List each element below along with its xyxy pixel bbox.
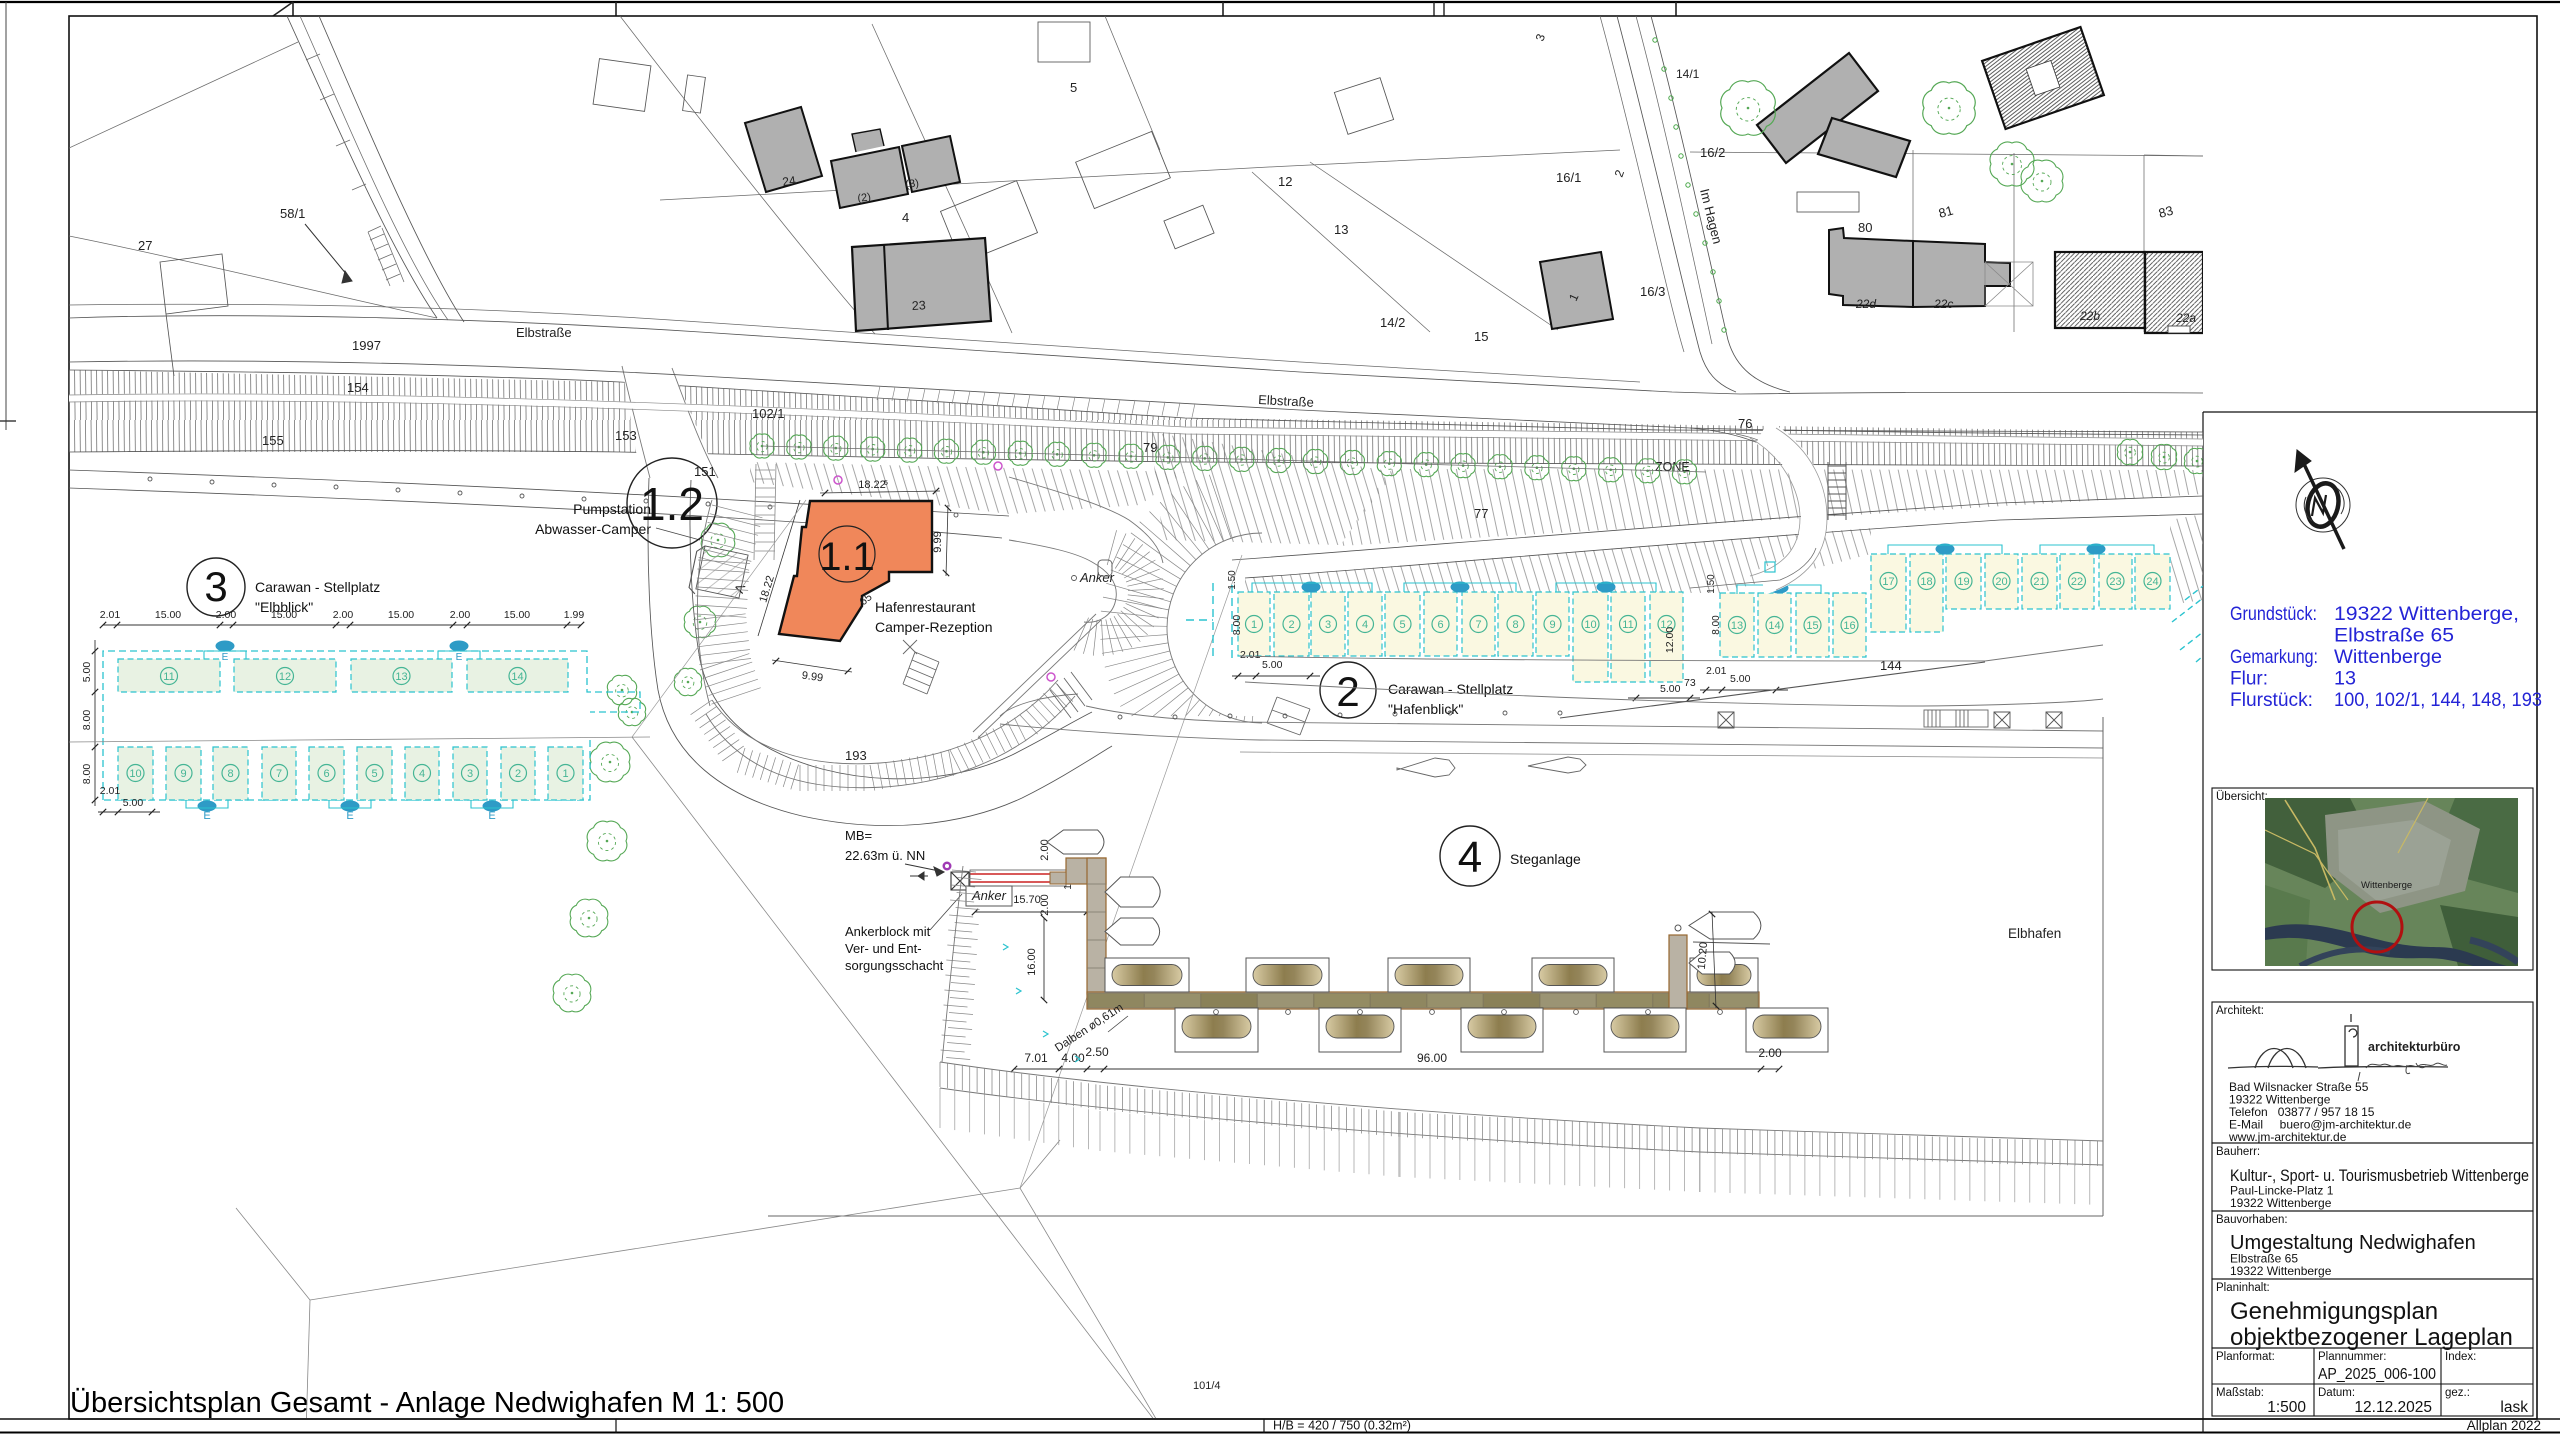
svg-text:14: 14 [1768, 620, 1780, 632]
svg-text:Elbstraße 65: Elbstraße 65 [2334, 626, 2454, 647]
svg-text:19: 19 [1957, 576, 1969, 588]
svg-text:2.01: 2.01 [1706, 665, 1727, 677]
svg-text:3: 3 [467, 768, 473, 780]
svg-text:22c: 22c [1933, 297, 1953, 311]
svg-text:Gemarkung:: Gemarkung: [2230, 647, 2318, 668]
svg-text:5: 5 [371, 768, 377, 780]
svg-text:16.00: 16.00 [1026, 948, 1038, 976]
svg-text:193: 193 [845, 748, 867, 763]
svg-text:102/1: 102/1 [752, 406, 785, 421]
svg-text:22d: 22d [1855, 297, 1876, 311]
svg-text:22: 22 [2071, 576, 2083, 588]
svg-text:4: 4 [419, 768, 425, 780]
svg-text:2.50: 2.50 [1085, 1045, 1109, 1059]
svg-text:5.00: 5.00 [1262, 659, 1283, 671]
svg-text:Flur:: Flur: [2230, 669, 2268, 690]
svg-text:5: 5 [884, 480, 888, 487]
svg-text:Camper-Rezeption: Camper-Rezeption [875, 619, 993, 635]
svg-text:8.00: 8.00 [81, 710, 93, 731]
svg-text:MB=: MB= [845, 828, 872, 843]
svg-text:(3): (3) [905, 177, 920, 191]
svg-text:Hafenrestaurant: Hafenrestaurant [875, 599, 976, 615]
svg-text:12: 12 [1278, 174, 1292, 189]
svg-text:15.70: 15.70 [1013, 894, 1041, 906]
svg-text:Anker: Anker [971, 888, 1007, 903]
svg-text:E: E [456, 652, 463, 663]
svg-text:1.99: 1.99 [564, 609, 585, 621]
svg-text:Anker: Anker [1079, 570, 1115, 585]
svg-text:Grundstück:: Grundstück: [2230, 604, 2317, 625]
svg-text:sorgungsschacht: sorgungsschacht [845, 958, 944, 973]
svg-text:5: 5 [1070, 80, 1077, 95]
svg-text:www.jm-architektur.de: www.jm-architektur.de [2228, 1130, 2347, 1144]
svg-text:E: E [488, 810, 495, 822]
svg-text:gez.:: gez.: [2445, 1387, 2470, 1399]
svg-text:Index:: Index: [2445, 1351, 2476, 1363]
svg-text:11: 11 [163, 671, 174, 683]
svg-text:154: 154 [347, 380, 369, 395]
svg-text:22a: 22a [2175, 311, 2196, 325]
svg-text:5: 5 [1399, 619, 1405, 631]
svg-text:lask: lask [2500, 1399, 2528, 1416]
svg-text:77: 77 [1474, 506, 1488, 521]
svg-text:E: E [222, 652, 229, 663]
svg-text:8: 8 [1512, 619, 1518, 631]
svg-text:14/1: 14/1 [1676, 67, 1700, 81]
svg-text:12: 12 [279, 671, 291, 683]
svg-text:144: 144 [1880, 658, 1902, 673]
svg-text:objektbezogener Lageplan: objektbezogener Lageplan [2230, 1324, 2513, 1351]
svg-text:12.00: 12.00 [1664, 627, 1676, 653]
svg-text:4.00: 4.00 [1061, 1051, 1085, 1065]
svg-text:27: 27 [138, 238, 152, 253]
svg-text:3: 3 [1325, 619, 1331, 631]
svg-text:8.00: 8.00 [81, 764, 93, 785]
svg-text:4: 4 [1362, 619, 1368, 631]
svg-text:2.01: 2.01 [100, 609, 121, 621]
svg-text:153: 153 [615, 428, 637, 443]
svg-text:Architekt:: Architekt: [2216, 1005, 2264, 1017]
svg-text:Elbstraße: Elbstraße [1258, 392, 1314, 410]
svg-text:4: 4 [902, 210, 909, 225]
svg-text:E: E [203, 810, 210, 822]
svg-text:19322 Wittenberge: 19322 Wittenberge [2230, 1264, 2332, 1278]
svg-text:5.00: 5.00 [1730, 673, 1751, 685]
svg-text:Datum:: Datum: [2318, 1387, 2355, 1399]
svg-text:15: 15 [1474, 329, 1488, 344]
svg-text:2.00: 2.00 [450, 609, 471, 621]
svg-text:17: 17 [1882, 576, 1894, 588]
svg-text:13: 13 [1731, 620, 1743, 632]
svg-text:24: 24 [2146, 576, 2158, 588]
svg-text:5.00: 5.00 [123, 797, 144, 809]
svg-text:9: 9 [180, 768, 186, 780]
svg-text:Wittenberge: Wittenberge [2361, 880, 2412, 891]
svg-text:58/1: 58/1 [280, 206, 305, 221]
svg-text:16/3: 16/3 [1640, 284, 1665, 299]
svg-text:13: 13 [1334, 222, 1348, 237]
svg-text:AP_2025_006-100: AP_2025_006-100 [2318, 1366, 2436, 1383]
svg-text:16/2: 16/2 [1700, 145, 1725, 160]
svg-text:Bauherr:: Bauherr: [2216, 1146, 2260, 1158]
svg-text:(2): (2) [857, 191, 872, 205]
svg-text:11: 11 [1622, 619, 1633, 631]
svg-text:Maßstab:: Maßstab: [2216, 1387, 2264, 1399]
svg-text:1: 1 [1251, 619, 1257, 631]
svg-text:Genehmigungsplan: Genehmigungsplan [2230, 1298, 2438, 1325]
svg-text:Abwasser-Camper: Abwasser-Camper [535, 521, 651, 537]
svg-text:Flurstück:: Flurstück: [2230, 690, 2313, 711]
svg-text:1: 1 [562, 768, 568, 780]
svg-text:"Elbblick": "Elbblick" [255, 599, 313, 615]
svg-text:13: 13 [395, 671, 407, 683]
svg-text:22b: 22b [2079, 309, 2100, 323]
svg-text:12.12.2025: 12.12.2025 [2354, 1399, 2432, 1416]
svg-text:18.22: 18.22 [858, 479, 886, 491]
svg-text:10.20: 10.20 [1696, 942, 1710, 970]
svg-text:1997: 1997 [352, 338, 381, 353]
svg-text:21: 21 [2033, 576, 2045, 588]
svg-text:76: 76 [1738, 416, 1752, 431]
svg-text:16: 16 [1843, 620, 1855, 632]
svg-text:155: 155 [262, 433, 284, 448]
svg-text:architekturbüro: architekturbüro [2368, 1040, 2461, 1054]
svg-text:9: 9 [1549, 619, 1555, 631]
svg-text:2.00: 2.00 [1039, 894, 1051, 915]
svg-text:8: 8 [227, 768, 233, 780]
svg-text:15: 15 [1806, 620, 1818, 632]
svg-text:2: 2 [1288, 619, 1294, 631]
svg-text:E: E [346, 810, 353, 822]
svg-text:7: 7 [1475, 619, 1481, 631]
svg-text:14/2: 14/2 [1380, 315, 1405, 330]
svg-text:6: 6 [323, 768, 329, 780]
svg-text:10: 10 [1584, 619, 1596, 631]
svg-text:Wittenberge: Wittenberge [2334, 647, 2442, 668]
svg-text:Steganlage: Steganlage [1510, 851, 1581, 867]
svg-text:24: 24 [781, 173, 796, 189]
svg-text:7.01: 7.01 [1024, 1051, 1048, 1065]
svg-text:2.01: 2.01 [100, 785, 121, 797]
svg-text:19322 Wittenberge,: 19322 Wittenberge, [2334, 604, 2519, 625]
svg-text:Planinhalt:: Planinhalt: [2216, 1282, 2270, 1294]
svg-text:5.00: 5.00 [1660, 683, 1681, 695]
svg-text:1.50: 1.50 [1706, 574, 1717, 594]
svg-text:9.99: 9.99 [932, 531, 944, 552]
svg-text:80: 80 [1858, 220, 1872, 235]
svg-text:Ankerblock mit: Ankerblock mit [845, 924, 931, 939]
svg-text:1.2: 1.2 [640, 478, 704, 530]
svg-text:6: 6 [1437, 619, 1443, 631]
svg-text:14: 14 [511, 671, 523, 683]
svg-text:"Hafenblick": "Hafenblick" [1388, 701, 1463, 717]
svg-text:101/4: 101/4 [1193, 1380, 1221, 1392]
svg-text:Carawan - Stellplatz: Carawan - Stellplatz [255, 579, 380, 595]
svg-text:Allplan 2022: Allplan 2022 [2467, 1418, 2541, 1433]
svg-text:Übersicht:: Übersicht: [2216, 791, 2268, 803]
svg-text:15.00: 15.00 [388, 609, 414, 621]
svg-text:96.00: 96.00 [1417, 1051, 1447, 1065]
svg-text:100, 102/1, 144, 148, 193: 100, 102/1, 144, 148, 193 [2334, 690, 2542, 711]
svg-text:Planformat:: Planformat: [2216, 1351, 2275, 1363]
svg-text:2.00: 2.00 [1758, 1046, 1782, 1060]
svg-text:23: 23 [911, 298, 926, 313]
svg-text:Bauvorhaben:: Bauvorhaben: [2216, 1214, 2288, 1226]
svg-text:7: 7 [276, 768, 282, 780]
svg-text:13: 13 [2334, 669, 2356, 690]
svg-text:10: 10 [129, 768, 141, 780]
svg-text:Übersichtsplan Gesamt - Anlage: Übersichtsplan Gesamt - Anlage Nedwighaf… [70, 1387, 784, 1419]
svg-text:18: 18 [1920, 576, 1932, 588]
svg-text:Elbstraße: Elbstraße [516, 325, 572, 340]
svg-text:2.01: 2.01 [1240, 649, 1261, 661]
svg-text:4: 4 [1458, 833, 1482, 882]
svg-text:2: 2 [1336, 668, 1359, 715]
svg-text:1.1: 1.1 [819, 535, 875, 579]
svg-text:2.00: 2.00 [333, 609, 354, 621]
svg-text:3: 3 [204, 563, 227, 610]
svg-text:22.63m ü. NN: 22.63m ü. NN [845, 848, 925, 863]
svg-text:19322 Wittenberge: 19322 Wittenberge [2230, 1196, 2332, 1210]
svg-text:23: 23 [2109, 576, 2121, 588]
svg-text:1.50: 1.50 [1227, 570, 1238, 590]
svg-text:20: 20 [1995, 576, 2007, 588]
svg-text:16/1: 16/1 [1556, 170, 1581, 185]
svg-text:H/B = 420 / 750 (0.32m²): H/B = 420 / 750 (0.32m²) [1273, 1419, 1411, 1433]
svg-text:15.00: 15.00 [504, 609, 530, 621]
svg-text:Plannummer:: Plannummer: [2318, 1351, 2386, 1363]
svg-text:5.00: 5.00 [81, 662, 93, 683]
svg-text:8.00: 8.00 [1711, 615, 1722, 635]
svg-text:Kultur-, Sport- u. Tourismusbe: Kultur-, Sport- u. Tourismusbetrieb Witt… [2230, 1166, 2529, 1185]
svg-text:15.00: 15.00 [155, 609, 181, 621]
svg-text:8.00: 8.00 [1231, 615, 1243, 636]
svg-text:Ver- und Ent-: Ver- und Ent- [845, 941, 922, 956]
svg-text:1:500: 1:500 [2267, 1399, 2306, 1416]
svg-text:Elbhafen: Elbhafen [2008, 926, 2061, 941]
svg-text:2: 2 [515, 768, 521, 780]
svg-text:73: 73 [1684, 677, 1696, 689]
